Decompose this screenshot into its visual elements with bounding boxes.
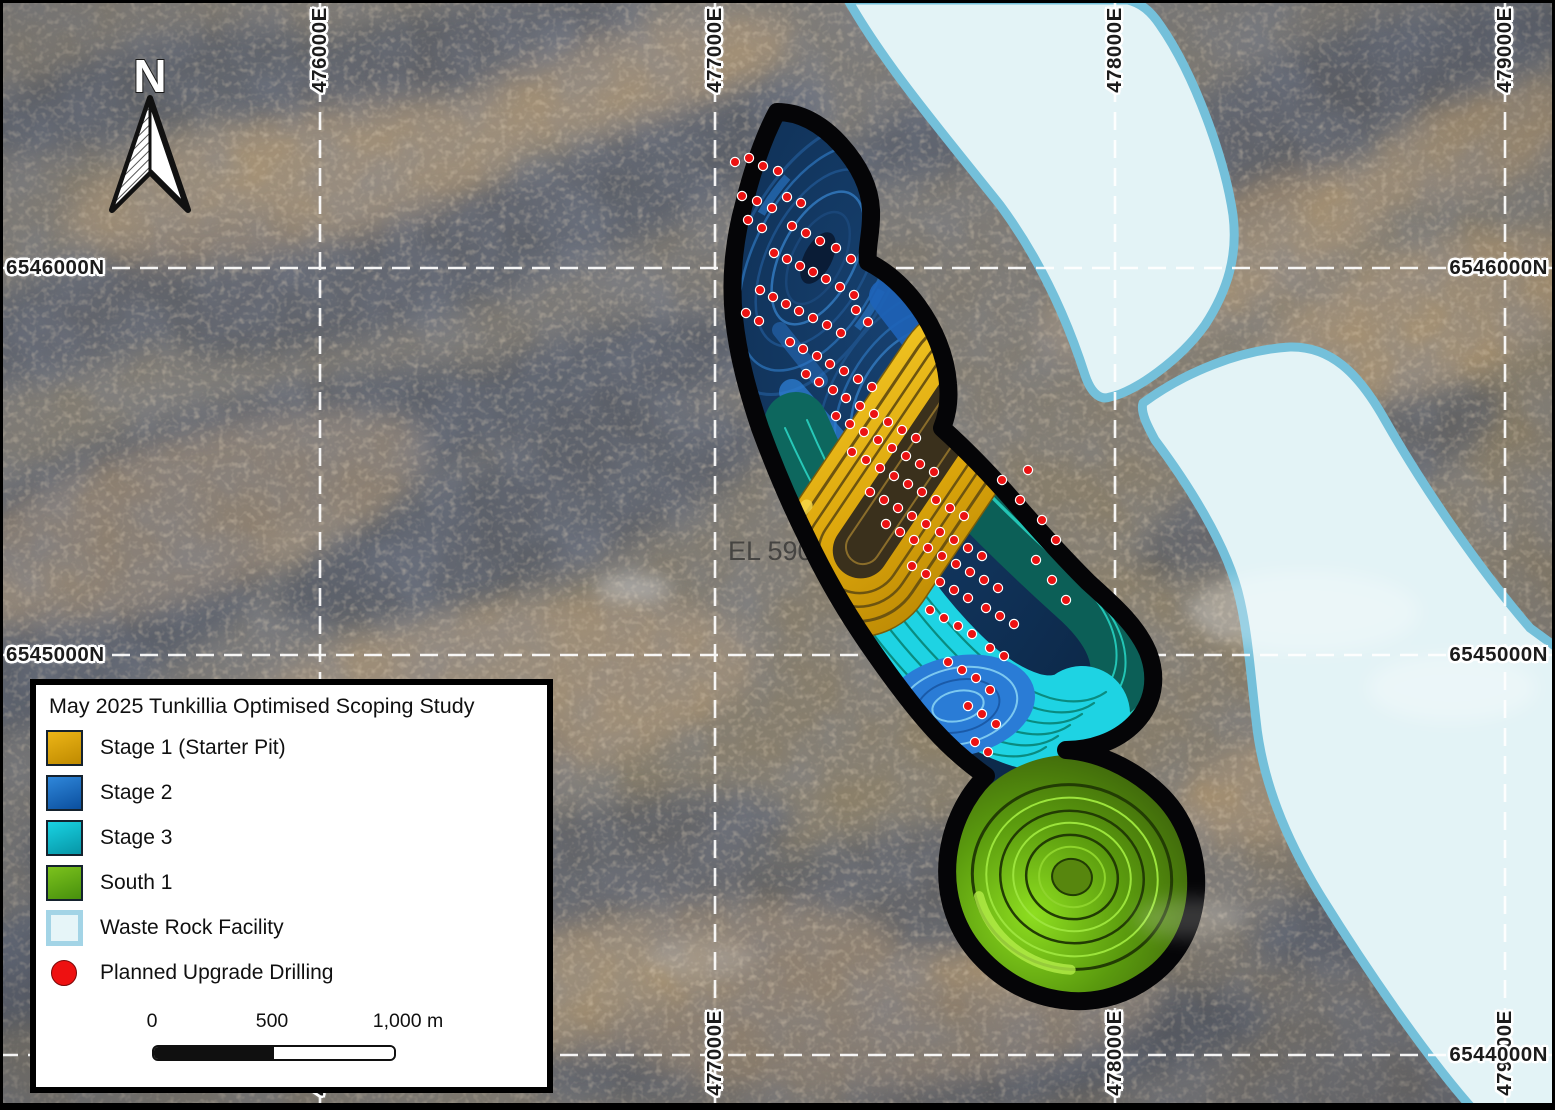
- easting-label-top: 477000E: [703, 7, 727, 93]
- northing-label-right: 6544000N: [1449, 1043, 1548, 1067]
- drill-collar-point: [855, 401, 864, 410]
- drill-collar-point: [881, 519, 890, 528]
- drill-collar-point: [965, 567, 974, 576]
- drill-collar-point: [787, 221, 796, 230]
- drill-collar-point: [939, 613, 948, 622]
- drill-collar-point: [757, 223, 766, 232]
- drill-collar-point: [959, 511, 968, 520]
- drill-collar-point: [873, 435, 882, 444]
- scalebar-tick-1000: 1,000 m: [373, 1010, 443, 1033]
- drill-collar-point: [754, 316, 763, 325]
- drill-collar-point: [741, 308, 750, 317]
- drill-collar-point: [963, 543, 972, 552]
- drill-collar-point: [869, 409, 878, 418]
- drill-collar-point: [985, 685, 994, 694]
- drill-collar-point: [814, 377, 823, 386]
- drill-collar-point: [808, 267, 817, 276]
- drill-collar-point: [970, 737, 979, 746]
- drill-collar-point: [875, 463, 884, 472]
- drill-collar-point: [851, 305, 860, 314]
- drill-collar-point: [957, 665, 966, 674]
- drill-collar-point: [907, 561, 916, 570]
- northing-label-left: 6545000N: [6, 643, 105, 667]
- drill-collar-point: [999, 651, 1008, 660]
- drill-collar-point: [909, 535, 918, 544]
- drill-collar-point: [907, 511, 916, 520]
- north-arrow: N: [98, 40, 228, 220]
- drill-collar-point: [846, 254, 855, 263]
- drill-collar-point: [796, 198, 805, 207]
- drill-collar-point: [785, 337, 794, 346]
- drill-collar-point: [903, 479, 912, 488]
- drill-collar-point: [977, 709, 986, 718]
- drill-collar-point: [768, 292, 777, 301]
- drill-collar-point: [1047, 575, 1056, 584]
- easting-label-top: 478000E: [1103, 7, 1127, 93]
- drill-collar-point: [839, 366, 848, 375]
- north-arrow-label: N: [133, 50, 166, 102]
- drill-collar-point: [923, 543, 932, 552]
- drill-collar-point: [883, 417, 892, 426]
- drill-collar-point: [951, 559, 960, 568]
- drill-collar-point: [825, 359, 834, 368]
- drill-collar-point: [767, 203, 776, 212]
- drill-collar-point: [822, 320, 831, 329]
- drill-collar-point: [935, 527, 944, 536]
- drill-collar-point: [861, 455, 870, 464]
- drill-collar-point: [821, 274, 830, 283]
- drill-collar-point: [993, 583, 1002, 592]
- easting-label-bottom: 477000E: [703, 1010, 727, 1096]
- drill-collar-point: [828, 385, 837, 394]
- drill-collar-point: [935, 577, 944, 586]
- easting-label-top: 479000E: [1493, 7, 1517, 93]
- drill-collar-point: [895, 527, 904, 536]
- scalebar-empty-segment: [274, 1047, 394, 1059]
- easting-label-top: 476000E: [308, 7, 332, 93]
- drill-collar-point: [737, 191, 746, 200]
- drill-collar-point: [1037, 515, 1046, 524]
- drill-collar-point: [887, 443, 896, 452]
- drill-collar-point: [841, 393, 850, 402]
- drill-collar-point: [991, 719, 1000, 728]
- drill-collar-point: [937, 551, 946, 560]
- drill-collar-point: [812, 351, 821, 360]
- drill-collar-point: [949, 585, 958, 594]
- drill-collar-point: [835, 282, 844, 291]
- drill-collar-point: [863, 317, 872, 326]
- drill-collar-point: [1009, 619, 1018, 628]
- drill-collar-point: [949, 535, 958, 544]
- drill-collar-point: [773, 166, 782, 175]
- drill-collar-point: [901, 451, 910, 460]
- drill-collar-point: [769, 248, 778, 257]
- drill-collar-point: [795, 261, 804, 270]
- drill-collar-point: [911, 433, 920, 442]
- drill-collar-point: [963, 593, 972, 602]
- drill-collar-point: [929, 467, 938, 476]
- drill-collar-point: [915, 459, 924, 468]
- drill-collar-point: [967, 629, 976, 638]
- drill-collar-point: [755, 285, 764, 294]
- drill-collar-point: [997, 475, 1006, 484]
- drill-collar-point: [859, 427, 868, 436]
- drill-collar-point: [995, 611, 1004, 620]
- drill-collar-point: [1015, 495, 1024, 504]
- drill-collar-point: [945, 503, 954, 512]
- drill-collar-point: [744, 153, 753, 162]
- drill-collar-point: [889, 471, 898, 480]
- drill-collar-point: [867, 382, 876, 391]
- drill-collar-point: [979, 575, 988, 584]
- drill-collar-point: [983, 747, 992, 756]
- northing-label-right: 6545000N: [1449, 643, 1548, 667]
- drill-collar-point: [798, 344, 807, 353]
- drill-collar-point: [985, 643, 994, 652]
- drill-collar-point: [853, 374, 862, 383]
- drill-collar-point: [847, 447, 856, 456]
- drill-collar-point: [981, 603, 990, 612]
- map-canvas: EL 590: [0, 0, 1555, 1110]
- scalebar-tick-0: 0: [147, 1010, 158, 1033]
- drill-collar-point: [831, 243, 840, 252]
- drill-collar-point: [782, 254, 791, 263]
- drill-collar-point: [794, 306, 803, 315]
- drill-collar-point: [801, 228, 810, 237]
- drill-collar-point: [1023, 465, 1032, 474]
- drill-collar-point: [801, 369, 810, 378]
- northing-label-left: 6546000N: [6, 256, 105, 280]
- legend-panel: May 2025 Tunkillia Optimised Scoping Stu…: [30, 679, 553, 1093]
- drill-collar-point: [925, 605, 934, 614]
- drill-collar-point: [752, 196, 761, 205]
- drill-collar-point: [743, 215, 752, 224]
- drill-collar-point: [1061, 595, 1070, 604]
- northing-label-right: 6546000N: [1449, 256, 1548, 280]
- drill-collar-point: [971, 673, 980, 682]
- drill-collar-point: [921, 569, 930, 578]
- drill-collar-point: [893, 503, 902, 512]
- drill-collar-point: [782, 192, 791, 201]
- drill-collar-point: [963, 701, 972, 710]
- drill-collar-point: [836, 328, 845, 337]
- drill-collar-point: [921, 519, 930, 528]
- drill-collar-point: [1031, 555, 1040, 564]
- drill-collar-point: [758, 161, 767, 170]
- drill-collar-point: [815, 236, 824, 245]
- scalebar-filled-segment: [154, 1047, 274, 1059]
- drill-collar-point: [897, 425, 906, 434]
- scalebar-tick-500: 500: [256, 1010, 289, 1033]
- drill-collar-point: [879, 495, 888, 504]
- drill-collar-point: [917, 487, 926, 496]
- drill-collar-point: [781, 299, 790, 308]
- easting-label-bottom: 478000E: [1103, 1010, 1127, 1096]
- drill-collar-point: [1051, 535, 1060, 544]
- drill-collar-point: [849, 290, 858, 299]
- drill-collar-point: [808, 313, 817, 322]
- drill-collar-point: [730, 157, 739, 166]
- drill-collar-point: [845, 419, 854, 428]
- drill-collar-point: [831, 411, 840, 420]
- drill-collar-point: [977, 551, 986, 560]
- scalebar: 0 500 1,000 m: [36, 685, 547, 1087]
- drill-collar-point: [953, 621, 962, 630]
- scalebar-bar: [152, 1045, 396, 1061]
- drill-collar-point: [865, 487, 874, 496]
- drill-collar-point: [943, 657, 952, 666]
- drill-collar-point: [931, 495, 940, 504]
